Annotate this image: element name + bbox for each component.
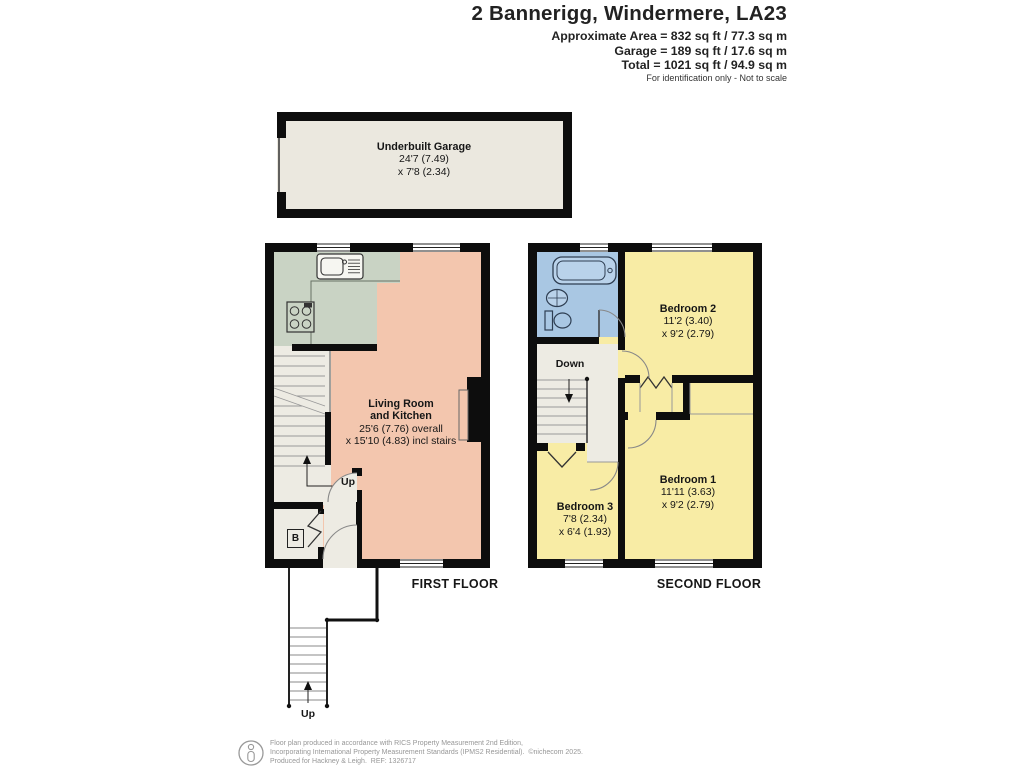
nichecom-logo xyxy=(239,741,263,765)
kitchen-sink xyxy=(317,254,363,279)
bedroom2-label: Bedroom 2 11'2 (3.40) x 9'2 (2.79) xyxy=(660,303,716,340)
up-label: Up xyxy=(341,476,355,488)
down-label: Down xyxy=(556,358,585,370)
approximate-area: Approximate Area = 832 sq ft / 77.3 sq m xyxy=(551,29,787,43)
first-floor-label: FIRST FLOOR xyxy=(412,577,499,591)
plan-svg xyxy=(0,0,1024,768)
bathtub xyxy=(553,257,616,284)
hob xyxy=(287,302,314,332)
external-up-label: Up xyxy=(301,708,315,720)
garage-label: Underbuilt Garage 24'7 (7.49) x 7'8 (2.3… xyxy=(377,141,471,178)
second-floor-label: SECOND FLOOR xyxy=(657,577,761,591)
footer-disclaimer: Floor plan produced in accordance with R… xyxy=(270,740,583,766)
basin xyxy=(547,290,568,307)
bedroom3-label: Bedroom 3 7'8 (2.34) x 6'4 (1.93) xyxy=(557,501,613,538)
floorplan-page: 2 Bannerigg, Windermere, LA23 Approximat… xyxy=(0,0,1024,768)
bathroom-wall xyxy=(537,337,599,344)
living-room-label: Living Room and Kitchen 25'6 (7.76) over… xyxy=(346,398,457,448)
garage-area: Garage = 189 sq ft / 17.6 sq m xyxy=(614,44,787,58)
total-area: Total = 1021 sq ft / 94.9 sq m xyxy=(621,58,787,72)
external-stairs xyxy=(287,568,379,708)
corridor-area xyxy=(587,344,618,462)
bedroom1-label: Bedroom 1 11'11 (3.63) x 9'2 (2.79) xyxy=(660,474,716,511)
fireplace xyxy=(459,390,468,440)
kitchen-wall xyxy=(292,344,377,351)
chimney-breast xyxy=(467,377,481,442)
disclaimer: For identification only - Not to scale xyxy=(646,73,787,83)
entrance-door-gap xyxy=(323,559,357,568)
boiler-box: B xyxy=(287,529,304,548)
page-title: 2 Bannerigg, Windermere, LA23 xyxy=(472,2,787,26)
